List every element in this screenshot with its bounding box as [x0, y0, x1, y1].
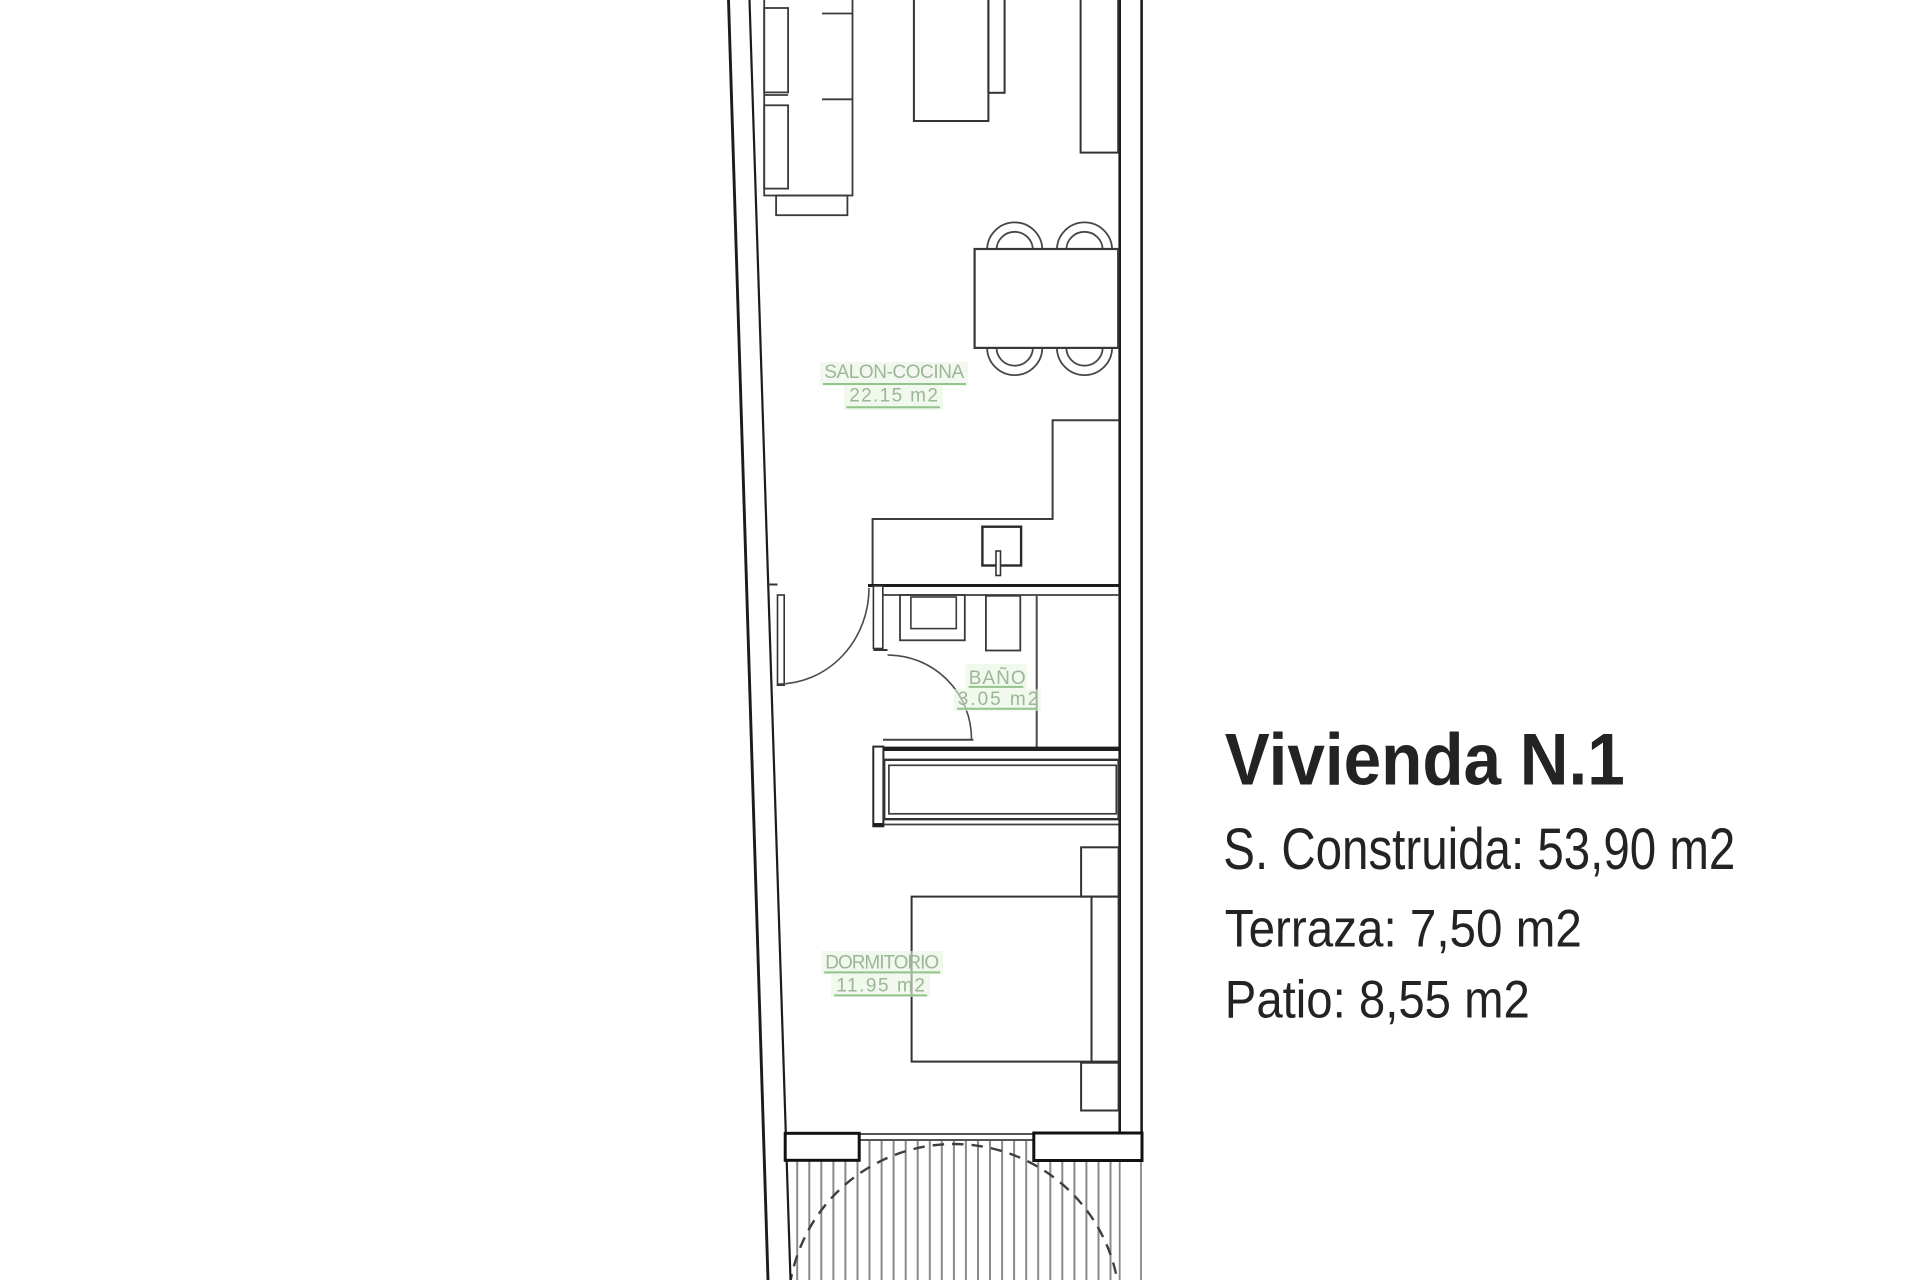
- svg-text:Vivienda N.1: Vivienda N.1: [1225, 719, 1625, 800]
- svg-text:BAÑO: BAÑO: [969, 667, 1026, 689]
- svg-text:11.95 m2: 11.95 m2: [836, 976, 925, 997]
- svg-text:S. Construida: 53,90 m2: S. Construida: 53,90 m2: [1223, 817, 1735, 882]
- svg-text:Terraza: 7,50 m2: Terraza: 7,50 m2: [1225, 899, 1582, 958]
- svg-text:22.15 m2: 22.15 m2: [849, 386, 938, 407]
- svg-text:Patio: 8,55 m2: Patio: 8,55 m2: [1225, 971, 1530, 1030]
- svg-text:SALON-COCINA: SALON-COCINA: [824, 362, 964, 383]
- svg-text:DORMITORIO: DORMITORIO: [825, 953, 939, 974]
